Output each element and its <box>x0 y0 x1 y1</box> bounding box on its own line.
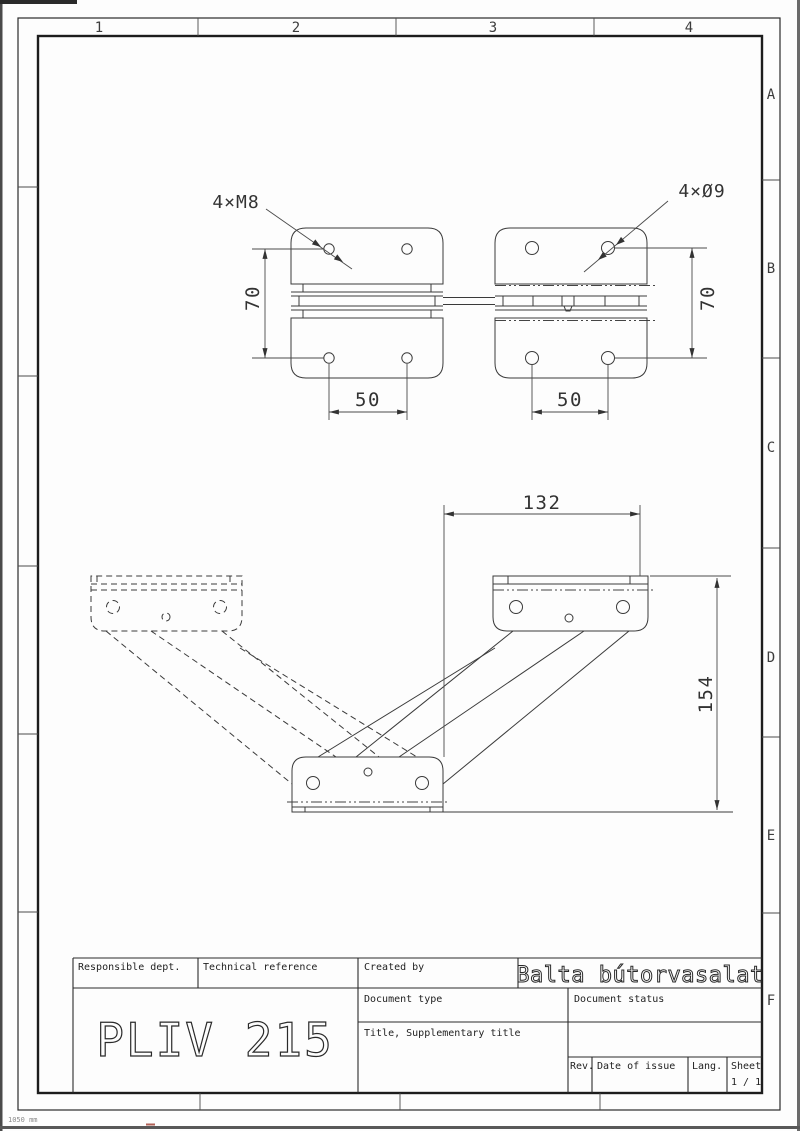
drawing-frame: 1 2 3 4 A B C D E F <box>18 18 780 1110</box>
zone-letter-c: C <box>767 440 775 456</box>
svg-text:4×M8: 4×M8 <box>212 192 259 213</box>
company-name: Balta bútorvasalat <box>516 963 763 988</box>
phantom-plate <box>91 576 242 631</box>
hinge-pin <box>562 296 574 306</box>
dim-50-left: 50 <box>329 364 407 420</box>
document-status-label: Document status <box>574 994 664 1005</box>
created-by-label: Created by <box>364 962 424 973</box>
svg-text:154: 154 <box>695 675 717 714</box>
dim-50-right: 50 <box>532 364 608 420</box>
title-block: Responsible dept. Technical reference Cr… <box>73 958 764 1093</box>
svg-text:50: 50 <box>557 389 583 411</box>
technical-reference-label: Technical reference <box>203 962 317 973</box>
zone-letter-e: E <box>767 828 775 844</box>
svg-text:132: 132 <box>523 492 562 514</box>
zone-number-3: 3 <box>489 20 497 36</box>
responsible-dept-label: Responsible dept. <box>78 962 180 973</box>
dim-154: 154 <box>650 576 731 810</box>
top-view: 70 70 50 50 4×M8 <box>212 181 725 420</box>
zone-number-2: 2 <box>292 20 300 36</box>
svg-text:70: 70 <box>697 285 719 311</box>
sheet-value: 1 / 1 <box>731 1077 761 1088</box>
svg-text:4×Ø9: 4×Ø9 <box>678 181 725 202</box>
svg-text:70: 70 <box>242 285 264 311</box>
svg-text:50: 50 <box>355 389 381 411</box>
zone-number-1: 1 <box>95 20 103 36</box>
zone-letter-a: A <box>767 87 776 103</box>
date-of-issue-label: Date of issue <box>597 1061 675 1072</box>
dim-70-left: 70 <box>242 249 324 358</box>
dim-70-right: 70 <box>615 248 719 358</box>
document-type-label: Document type <box>364 994 442 1005</box>
drawing-sheet: 1050 mm 1 2 3 4 A B C D E F <box>0 0 800 1131</box>
zone-letter-f: F <box>767 993 775 1009</box>
sheet-label: Sheet <box>731 1061 761 1072</box>
zone-number-4: 4 <box>685 20 693 36</box>
lang-label: Lang. <box>692 1061 722 1072</box>
zone-letter-d: D <box>767 650 775 666</box>
upper-plate <box>493 576 655 631</box>
scan-ruler-note: 1050 mm <box>8 1116 38 1124</box>
rev-label: Rev. <box>570 1061 594 1072</box>
callout-4xM8: 4×M8 <box>212 192 352 269</box>
callout-4xO9: 4×Ø9 <box>584 181 726 272</box>
zone-letter-b: B <box>767 261 775 277</box>
bottom-plate <box>287 757 448 812</box>
dim-132: 132 <box>444 492 640 757</box>
front-view: 132 154 <box>91 492 733 812</box>
title-label: Title, Supplementary title <box>364 1028 521 1039</box>
part-number: PLIV 215 <box>96 1013 334 1067</box>
